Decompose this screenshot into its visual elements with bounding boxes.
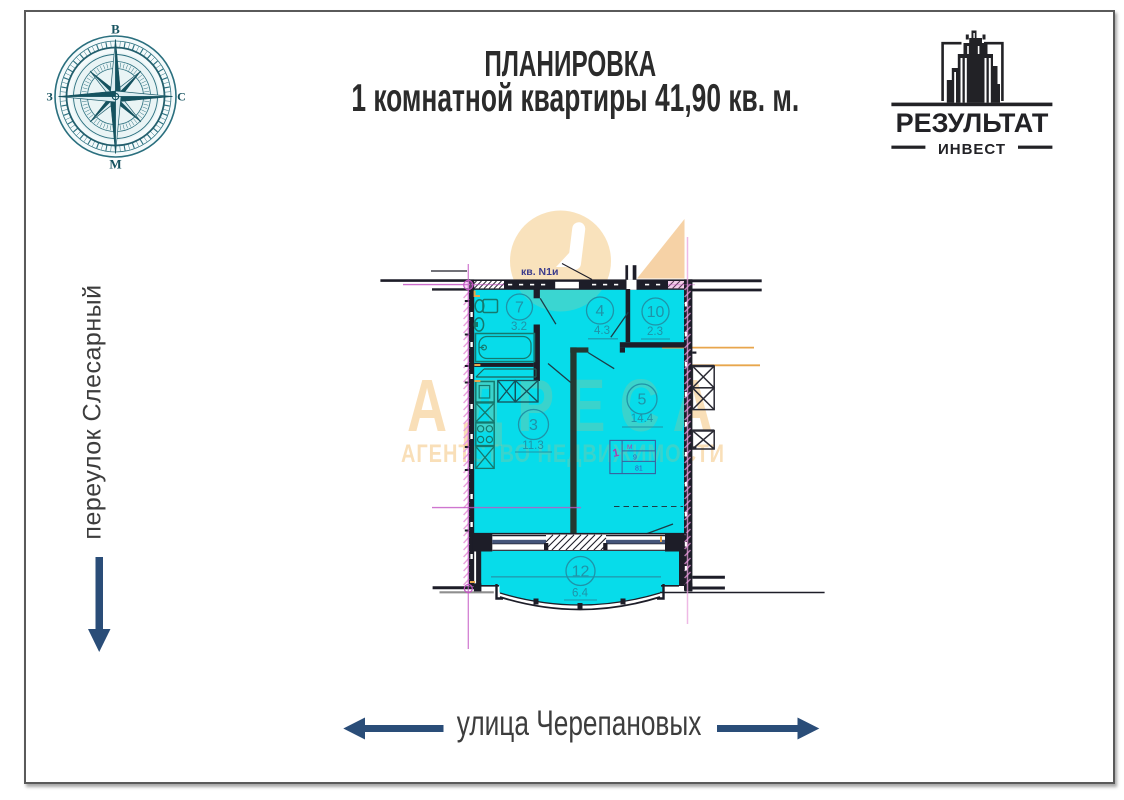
svg-text:кв. N1и: кв. N1и (521, 266, 558, 278)
svg-text:В: В (111, 22, 120, 37)
svg-text:81: 81 (635, 466, 643, 473)
svg-text:14.4: 14.4 (631, 413, 654, 425)
svg-text:10: 10 (647, 304, 665, 321)
svg-text:4: 4 (596, 303, 605, 320)
svg-text:2.3: 2.3 (647, 326, 663, 338)
svg-text:12: 12 (572, 564, 590, 581)
svg-text:3: 3 (529, 417, 538, 434)
svg-text:3.2: 3.2 (511, 321, 527, 333)
svg-text:М: М (627, 444, 632, 451)
svg-text:З: З (46, 90, 52, 104)
svg-text:7: 7 (515, 300, 524, 317)
svg-text:С: С (177, 90, 186, 104)
svg-text:5: 5 (638, 392, 647, 409)
svg-text:6.4: 6.4 (572, 588, 589, 600)
svg-text:9: 9 (633, 455, 637, 462)
svg-text:М: М (109, 157, 121, 172)
svg-text:4.3: 4.3 (594, 325, 610, 337)
svg-text:11.3: 11.3 (522, 440, 544, 452)
